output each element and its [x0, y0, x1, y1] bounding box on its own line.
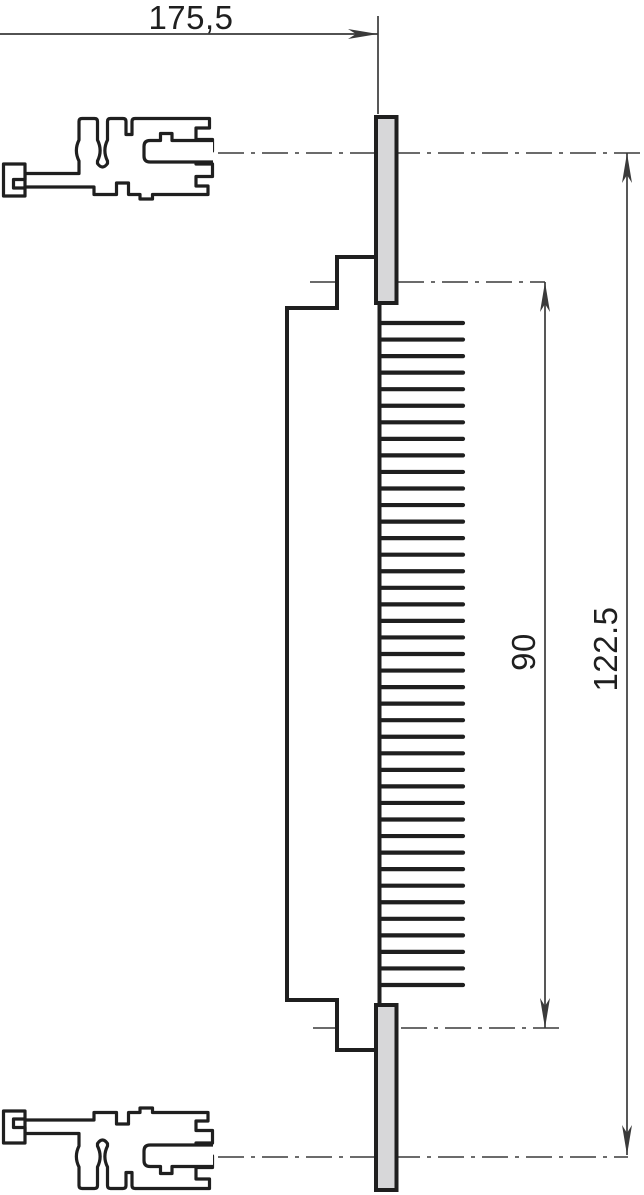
connector-body	[287, 257, 380, 1050]
rail-profile-bottom	[4, 1108, 214, 1189]
dimension-label-total-height: 122.5	[587, 606, 624, 691]
technical-drawing: 175,5 90 122.5	[0, 0, 644, 1195]
technical-drawing-page: 175,5 90 122.5	[0, 0, 644, 1195]
connector-pins	[380, 323, 463, 985]
dimension-label-pin-span: 90	[505, 633, 542, 671]
connector-flange-bottom	[376, 1005, 397, 1190]
dimension-label-width: 175,5	[148, 0, 233, 36]
connector-flange-top	[376, 117, 397, 303]
